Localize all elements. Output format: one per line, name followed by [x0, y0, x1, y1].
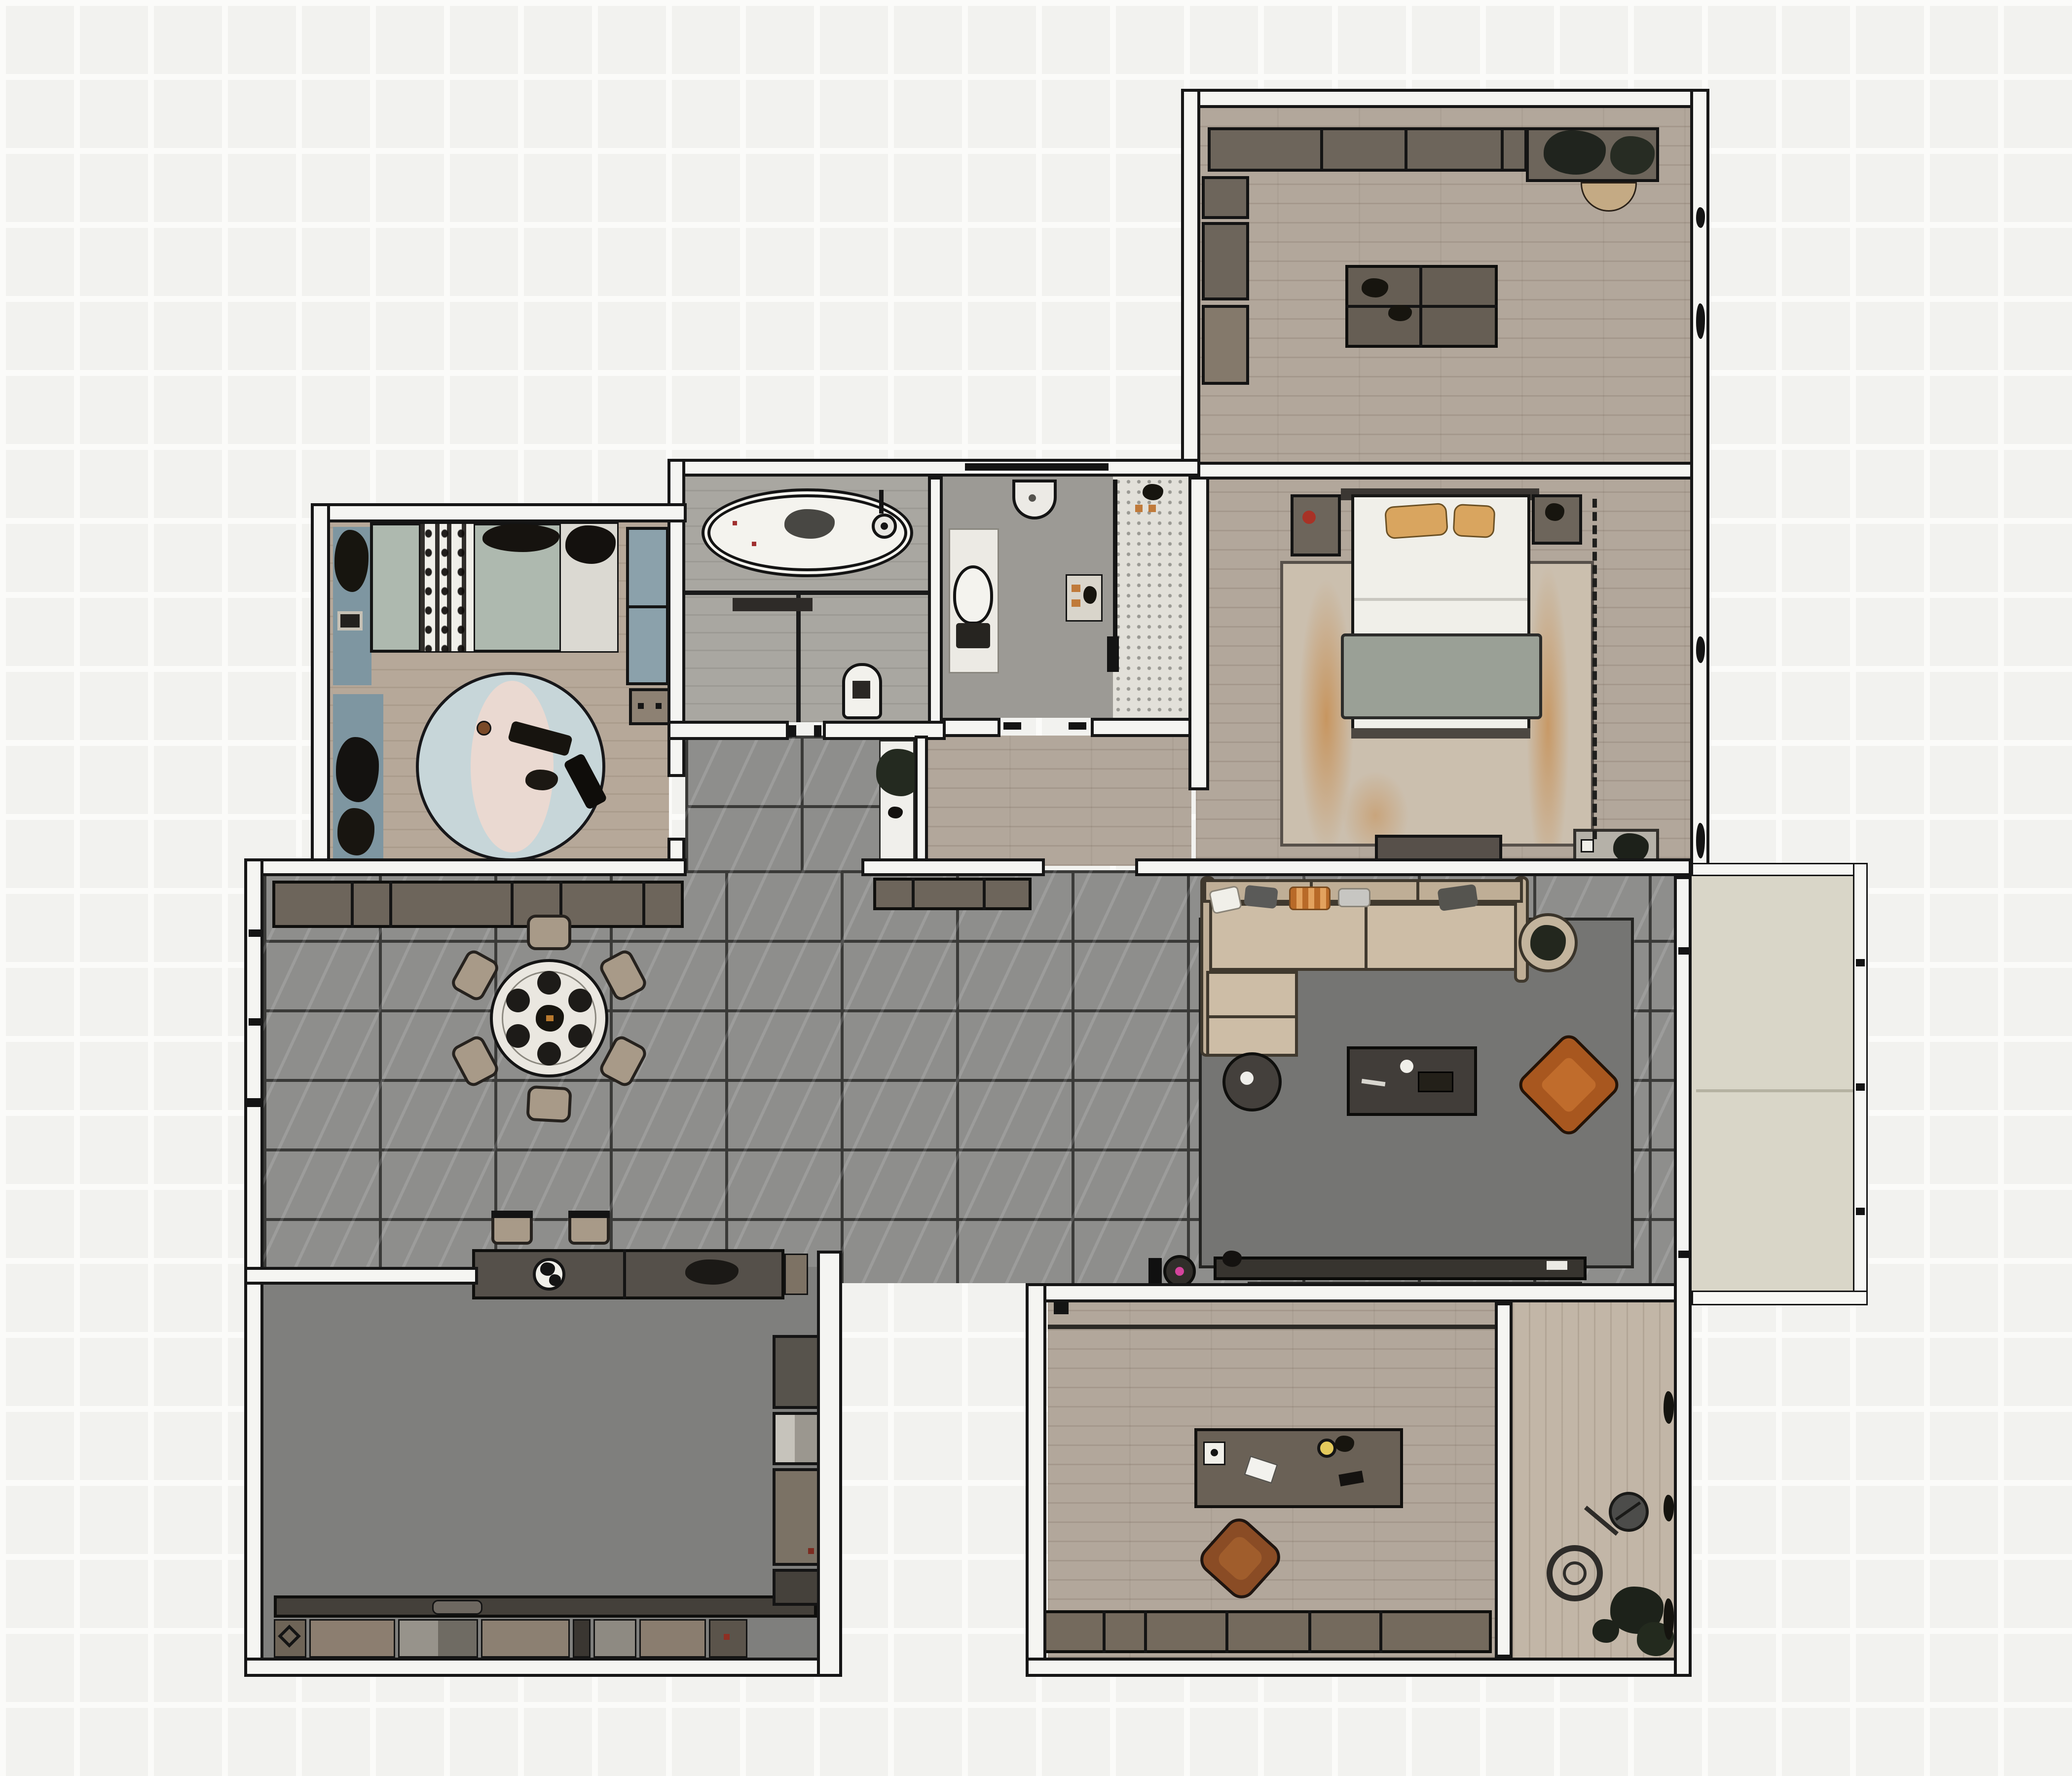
wall-office-right: [1674, 876, 1692, 1677]
bed-footboard: [1351, 728, 1530, 739]
nightstand-lamp: [1545, 503, 1564, 521]
closet-cabinet-divider: [1405, 127, 1407, 172]
shower-knob: [1148, 505, 1156, 512]
nightstand-left: [1291, 494, 1341, 556]
island-plate-food: [540, 1262, 555, 1276]
office-door-mark: [1054, 1302, 1069, 1314]
wall-wc-bottom-b: [1091, 718, 1191, 737]
wc-basin-dot: [1029, 494, 1036, 502]
bed-duvet-fold: [1354, 598, 1527, 601]
wall-closet-top: [1181, 89, 1709, 108]
wall-bath-wc-divider: [928, 477, 943, 724]
shower-head-2: [1143, 484, 1163, 500]
bathtub-petals-dark: [784, 509, 835, 539]
wc-shelf-item: [1083, 586, 1097, 604]
wc-shelf-towel: [1072, 599, 1080, 607]
kitchen-tall-unit: [773, 1569, 820, 1606]
closet-island-items: [1388, 305, 1412, 321]
kids-rug-ball: [477, 721, 491, 736]
wall-kids-left: [311, 503, 330, 876]
island-speckles: [740, 1258, 778, 1294]
dining-plate: [537, 1042, 561, 1066]
wall-bedroom-left: [1188, 477, 1209, 790]
sideboard-decor: [290, 888, 334, 921]
wall-office-left: [1026, 1283, 1046, 1677]
wall-plant-tick: [1664, 1391, 1674, 1424]
wall-closet-left: [1181, 89, 1200, 477]
window-mark-right-wall: [1678, 947, 1689, 955]
kids-bed-toys-top: [482, 524, 559, 552]
sideboard-divider: [983, 878, 986, 910]
fan-base-inner: [1563, 1561, 1587, 1585]
sofa-seat: [1209, 903, 1517, 971]
media-console: [1214, 1257, 1587, 1280]
kitchen-counter: [274, 1595, 817, 1618]
wall-kids-top: [311, 503, 687, 522]
dining-chair: [526, 1085, 572, 1123]
wall-plant-tick: [1696, 207, 1705, 228]
balcony-floor-seam: [1696, 1089, 1853, 1092]
dining-centerpiece-fruit: [546, 1015, 554, 1021]
sideboard-divider: [389, 881, 392, 928]
kids-toys: [337, 808, 374, 855]
window-mark-left-wall: [249, 1018, 260, 1026]
bathtub-petal-red: [752, 542, 756, 546]
coffee-table-cup: [1400, 1060, 1413, 1073]
sofa-pillow-gray: [1244, 885, 1278, 909]
robot-vacuum-dock: [1148, 1258, 1162, 1285]
kids-dresser-knob: [638, 703, 644, 709]
sideboard-divider: [1379, 1610, 1382, 1653]
dining-chair: [527, 915, 571, 950]
desk-speaker-dot: [1211, 1449, 1218, 1456]
closet-left-cabinet: [1202, 176, 1249, 219]
railing-post: [1856, 1083, 1865, 1091]
closet-dashed-divider: [1592, 499, 1597, 839]
wall-bath-top: [667, 459, 1200, 477]
kitchen-cabinet: [309, 1619, 395, 1658]
wall-office-bottom: [1026, 1658, 1692, 1677]
wall-living-bottom: [1026, 1283, 1692, 1302]
wall-balcony-top: [1692, 863, 1868, 876]
tall-unit-light-band: [776, 1415, 795, 1462]
wall-wc-bottom-a: [943, 718, 1000, 737]
sideboard-divider: [1103, 1610, 1106, 1653]
desk-lamp-arm: [1335, 1436, 1354, 1452]
wall-kitchen-bottom: [244, 1658, 842, 1677]
bath-toilet-lid: [852, 681, 870, 699]
bar-stool-back: [491, 1211, 533, 1218]
kitchen-cabinet-dark-half: [438, 1621, 477, 1656]
shower-knob: [1135, 505, 1143, 512]
wall-plant-tick: [1664, 1598, 1674, 1640]
wall-balcony-bottom: [1692, 1291, 1868, 1305]
wall-plant-tick: [1696, 823, 1705, 858]
wall-living-top-a: [861, 858, 1045, 876]
bath-door-jamb: [814, 725, 821, 737]
kids-rug-bits: [525, 770, 558, 790]
floor-plan: [0, 0, 2072, 1776]
side-table-cup: [1240, 1072, 1254, 1085]
sideboard-divider: [511, 881, 514, 928]
railing-post: [1856, 1208, 1865, 1215]
sideboard-divider: [642, 881, 645, 928]
sideboard-divider: [1308, 1610, 1311, 1653]
kids-strip-frame: [337, 611, 363, 630]
sofa-back-divider: [1416, 879, 1419, 903]
sideboard-divider: [351, 881, 354, 928]
wall-plant-tick: [1696, 303, 1705, 339]
wall-office-utility-divider: [1495, 1302, 1513, 1658]
wc-toilet-bowl: [953, 565, 993, 625]
office-desk: [1194, 1428, 1403, 1508]
kids-bed-birch-blanket: [419, 522, 475, 653]
robot-vacuum-dot: [1175, 1267, 1184, 1276]
coffee-table-tray: [1418, 1072, 1453, 1092]
wall-dining-top: [244, 858, 687, 876]
shower-glass-panel: [1113, 480, 1117, 639]
sideboard-divider: [1144, 1610, 1147, 1653]
bed-pillow: [1384, 503, 1448, 540]
sofa-pillow-light: [1338, 888, 1370, 907]
kitchen-cabinet-dot: [724, 1634, 730, 1640]
kids-bed-teddy: [565, 525, 616, 564]
closet-island-divider: [1345, 305, 1498, 308]
wall-plant-tick: [1696, 636, 1705, 663]
sideboard-divider: [912, 878, 915, 910]
office-threshold: [1048, 1325, 1495, 1329]
floor-wood-hallway: [928, 736, 1191, 866]
floor-plan-viewport: [0, 0, 2072, 1776]
bathtub-petal-red: [733, 521, 737, 525]
dining-plate: [506, 989, 530, 1012]
sideboard-divider: [1225, 1610, 1228, 1653]
sideboard-decor: [429, 889, 491, 922]
kitchen-cabinet: [573, 1619, 591, 1658]
dining-plate: [537, 971, 561, 995]
kids-dresser-knob: [656, 703, 662, 709]
plant-foliage: [1610, 136, 1655, 175]
island-cookware: [685, 1259, 739, 1285]
island-divider: [623, 1249, 626, 1299]
sideboard-decor: [1054, 1619, 1086, 1643]
bed-pillow: [1452, 504, 1495, 538]
kitchen-cabinet: [639, 1619, 706, 1658]
kids-chair-toy: [336, 737, 379, 802]
kitchen-tall-unit: [773, 1335, 820, 1409]
closet-left-cabinet: [1202, 305, 1249, 385]
wc-toilet-tank: [956, 623, 990, 648]
wall-kitchen-right: [817, 1251, 842, 1677]
sofa-chaise-line: [1206, 1015, 1298, 1018]
hall-sideboard: [873, 878, 1032, 910]
wall-kids-right-a: [667, 736, 685, 777]
bed-blanket: [1341, 633, 1542, 719]
window-mark-left-wall: [246, 1098, 263, 1107]
bath-door-jamb: [789, 725, 796, 737]
dining-plate: [568, 989, 592, 1012]
console-item: [1547, 1261, 1567, 1270]
console-plant: [1222, 1251, 1242, 1267]
bath-bench: [733, 598, 813, 611]
window-mark-right-wall: [1678, 1251, 1689, 1258]
floor-balcony: [1692, 876, 1853, 1291]
bar-stool-back: [568, 1211, 610, 1218]
wc-door-threshold: [1003, 722, 1021, 730]
sofa-seat-divider: [1365, 903, 1368, 971]
kitchen-sink: [432, 1600, 482, 1615]
shower-fixture-stem: [879, 490, 884, 514]
sideboard-decor: [1317, 1621, 1359, 1643]
sofa-chaise: [1206, 971, 1298, 1057]
wall-bath-left: [667, 459, 685, 743]
island-end-cabinet: [784, 1254, 808, 1295]
closet-cabinet-divider: [1320, 127, 1323, 172]
shower-door-pivot: [1107, 636, 1119, 672]
wc-door-threshold: [1069, 722, 1086, 730]
wall-living-top-b: [1135, 858, 1692, 876]
nightstand-flowers: [1302, 511, 1316, 524]
sideboard-decor: [589, 891, 625, 921]
wall-hall-divider: [915, 736, 928, 876]
hall-plant-bits: [888, 807, 903, 818]
sofa-pillow-orange: [1289, 887, 1331, 910]
office-sideboard: [1040, 1610, 1492, 1653]
wall-kitchen-stub: [244, 1267, 478, 1285]
closet-top-cabinet-row: [1208, 127, 1527, 172]
kids-bed-dots-panel: [373, 525, 419, 650]
railing-post: [1856, 959, 1865, 966]
bath-partition-line: [685, 591, 929, 595]
wc-sliding-door-track: [965, 463, 1109, 471]
desk-lamp: [1317, 1439, 1336, 1458]
tall-unit-dot: [808, 1548, 814, 1554]
wall-plant-tick: [1664, 1495, 1674, 1521]
dining-plate: [568, 1024, 592, 1048]
utility-plant: [1592, 1619, 1619, 1643]
plant-foliage: [1544, 130, 1606, 175]
kitchen-cabinet: [481, 1619, 570, 1658]
kitchen-cabinet: [593, 1619, 636, 1658]
closet-cabinet-divider: [1501, 127, 1504, 172]
kids-strip-toys: [334, 530, 369, 592]
dining-plate: [506, 1024, 530, 1048]
kids-rug-inner: [471, 681, 554, 852]
wall-bath-bottom-a: [667, 721, 789, 740]
wall-closet-bedroom-divider: [1196, 462, 1693, 480]
corner-mat-box: [1581, 839, 1594, 852]
window-mark-left-wall: [249, 929, 260, 937]
wc-shelf-towel: [1072, 585, 1080, 592]
island-plate-food: [549, 1274, 561, 1286]
kids-wardrobe-divider: [626, 605, 669, 608]
closet-left-cabinet: [1202, 222, 1249, 300]
planter-plant: [1530, 925, 1566, 961]
kids-dresser: [629, 688, 673, 725]
floor-shower: [1113, 477, 1191, 718]
shower-fixture-dot: [881, 522, 888, 530]
closet-island-items: [1362, 278, 1388, 297]
